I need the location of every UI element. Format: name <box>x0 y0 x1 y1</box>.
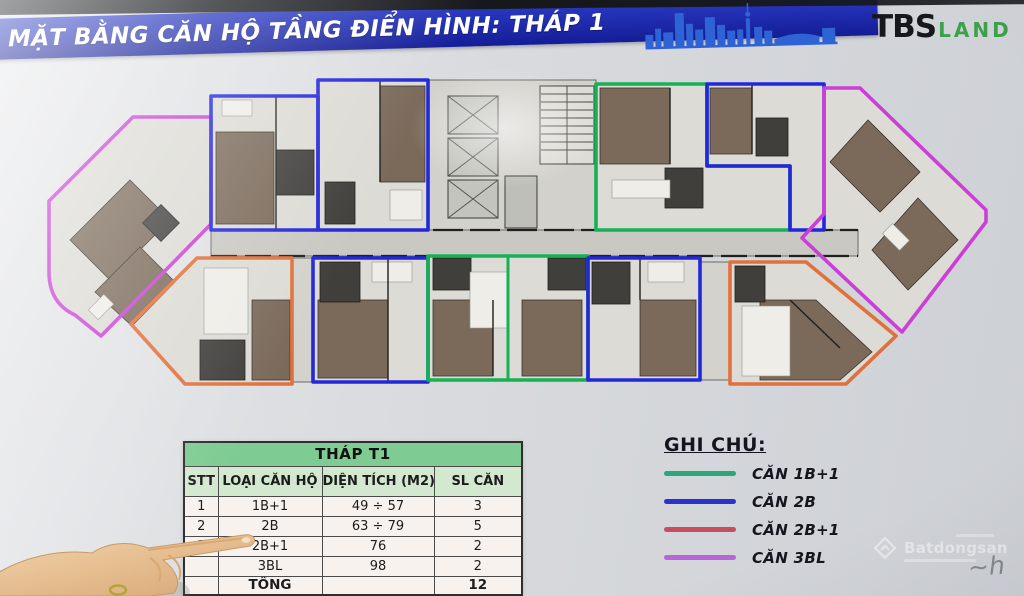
cell-count: 3 <box>434 496 522 516</box>
legend-item: CĂN 2B <box>664 494 840 509</box>
legend-item-label: CĂN 3BL <box>752 549 826 567</box>
pointing-hand <box>0 498 360 596</box>
legend-items: CĂN 1B+1CĂN 2BCĂN 2B+1CĂN 3BL <box>664 466 840 565</box>
tbs-land-logo: TBS LAND <box>872 9 1012 45</box>
table-header-row: STT LOẠI CĂN HỘ DIỆN TÍCH (M2) SL CĂN <box>184 466 522 496</box>
legend-item-label: CĂN 1B+1 <box>752 465 840 483</box>
slide-photo: MẶT BẰNG CĂN HỘ TẦNG ĐIỂN HÌNH: THÁP 1 T… <box>0 0 1024 596</box>
legend-color-line <box>664 527 736 532</box>
total-count: 12 <box>434 576 522 595</box>
handwritten-mark: ~h <box>967 551 1006 582</box>
cell-count: 2 <box>434 536 522 556</box>
skyline-graphic <box>644 0 863 54</box>
legend-item: CĂN 1B+1 <box>664 466 840 481</box>
legend-color-line <box>664 471 736 476</box>
col-header-count: SL CĂN <box>434 466 522 496</box>
col-header-stt: STT <box>184 466 218 496</box>
watermark-house-icon <box>872 535 898 561</box>
col-header-area: DIỆN TÍCH (M2) <box>322 466 434 496</box>
legend-color-line <box>664 499 736 504</box>
legend: GHI CHÚ: CĂN 1B+1CĂN 2BCĂN 2B+1CĂN 3BL <box>664 434 840 578</box>
cell-count: 5 <box>434 516 522 536</box>
col-header-type: LOẠI CĂN HỘ <box>218 466 322 496</box>
table-title-row: THÁP T1 <box>184 442 522 466</box>
legend-item-label: CĂN 2B+1 <box>752 521 840 539</box>
legend-item: CĂN 2B+1 <box>664 522 840 537</box>
legend-title: GHI CHÚ: <box>664 434 840 456</box>
table-title: THÁP T1 <box>184 442 522 466</box>
legend-item: CĂN 3BL <box>664 550 840 565</box>
legend-color-line <box>664 555 736 560</box>
logo-text-secondary: LAND <box>938 18 1012 42</box>
cell-count: 2 <box>434 556 522 576</box>
watermark-subline <box>904 559 976 562</box>
skyline-buildings <box>644 1 837 50</box>
fingernail <box>242 537 251 543</box>
logo-text-primary: TBS <box>872 9 936 45</box>
watermark-subline <box>956 534 994 537</box>
hand-silhouette <box>0 535 255 596</box>
legend-item-label: CĂN 2B <box>752 493 816 511</box>
